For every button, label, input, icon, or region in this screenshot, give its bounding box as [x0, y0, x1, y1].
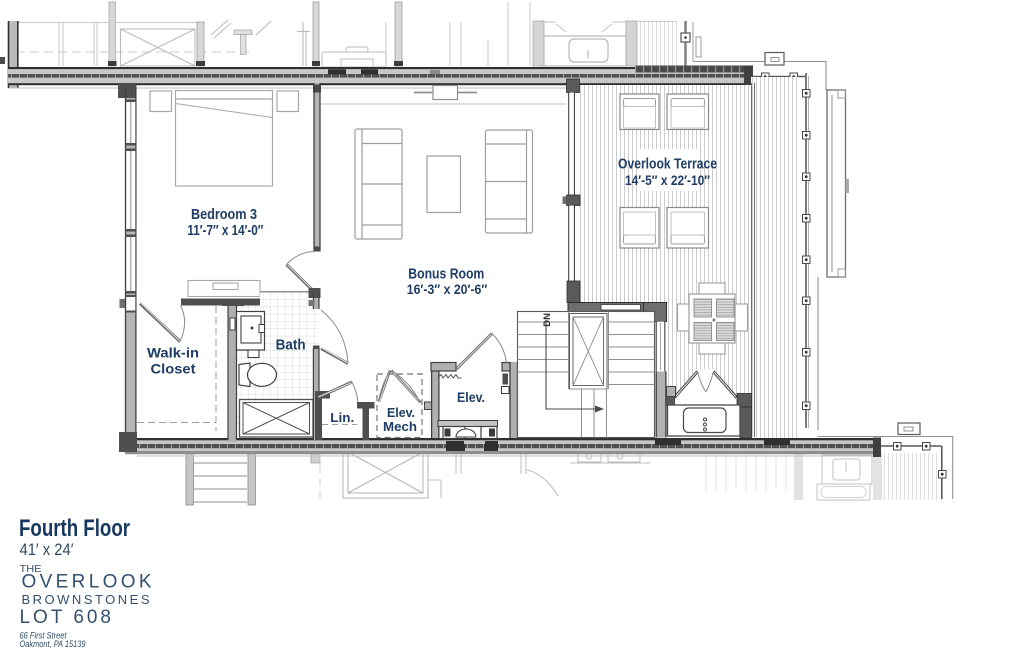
svg-text:Elev.: Elev.	[387, 405, 415, 420]
svg-text:14′-5″ x 22′-10″: 14′-5″ x 22′-10″	[625, 173, 710, 188]
svg-text:Fourth Floor: Fourth Floor	[19, 515, 130, 542]
svg-text:Oakmont, PA 15139: Oakmont, PA 15139	[20, 639, 87, 650]
svg-text:Bedroom 3: Bedroom 3	[191, 206, 257, 223]
svg-text:LOT 608: LOT 608	[20, 607, 112, 628]
svg-text:Elev.: Elev.	[457, 390, 485, 405]
svg-text:Bath: Bath	[276, 338, 306, 354]
svg-text:Closet: Closet	[151, 362, 197, 377]
svg-text:Walk-in: Walk-in	[147, 346, 199, 361]
svg-text:41′ x 24′: 41′ x 24′	[20, 541, 74, 559]
svg-text:16′-3″ x 20′-6″: 16′-3″ x 20′-6″	[407, 281, 488, 297]
svg-text:BROWNSTONES: BROWNSTONES	[22, 592, 150, 607]
svg-text:11′-7″ x 14′-0″: 11′-7″ x 14′-0″	[187, 223, 263, 239]
svg-text:Lin.: Lin.	[330, 410, 354, 425]
svg-text:Mech: Mech	[383, 419, 417, 434]
svg-text:Overlook Terrace: Overlook Terrace	[618, 157, 717, 173]
svg-text:DN: DN	[542, 313, 553, 327]
